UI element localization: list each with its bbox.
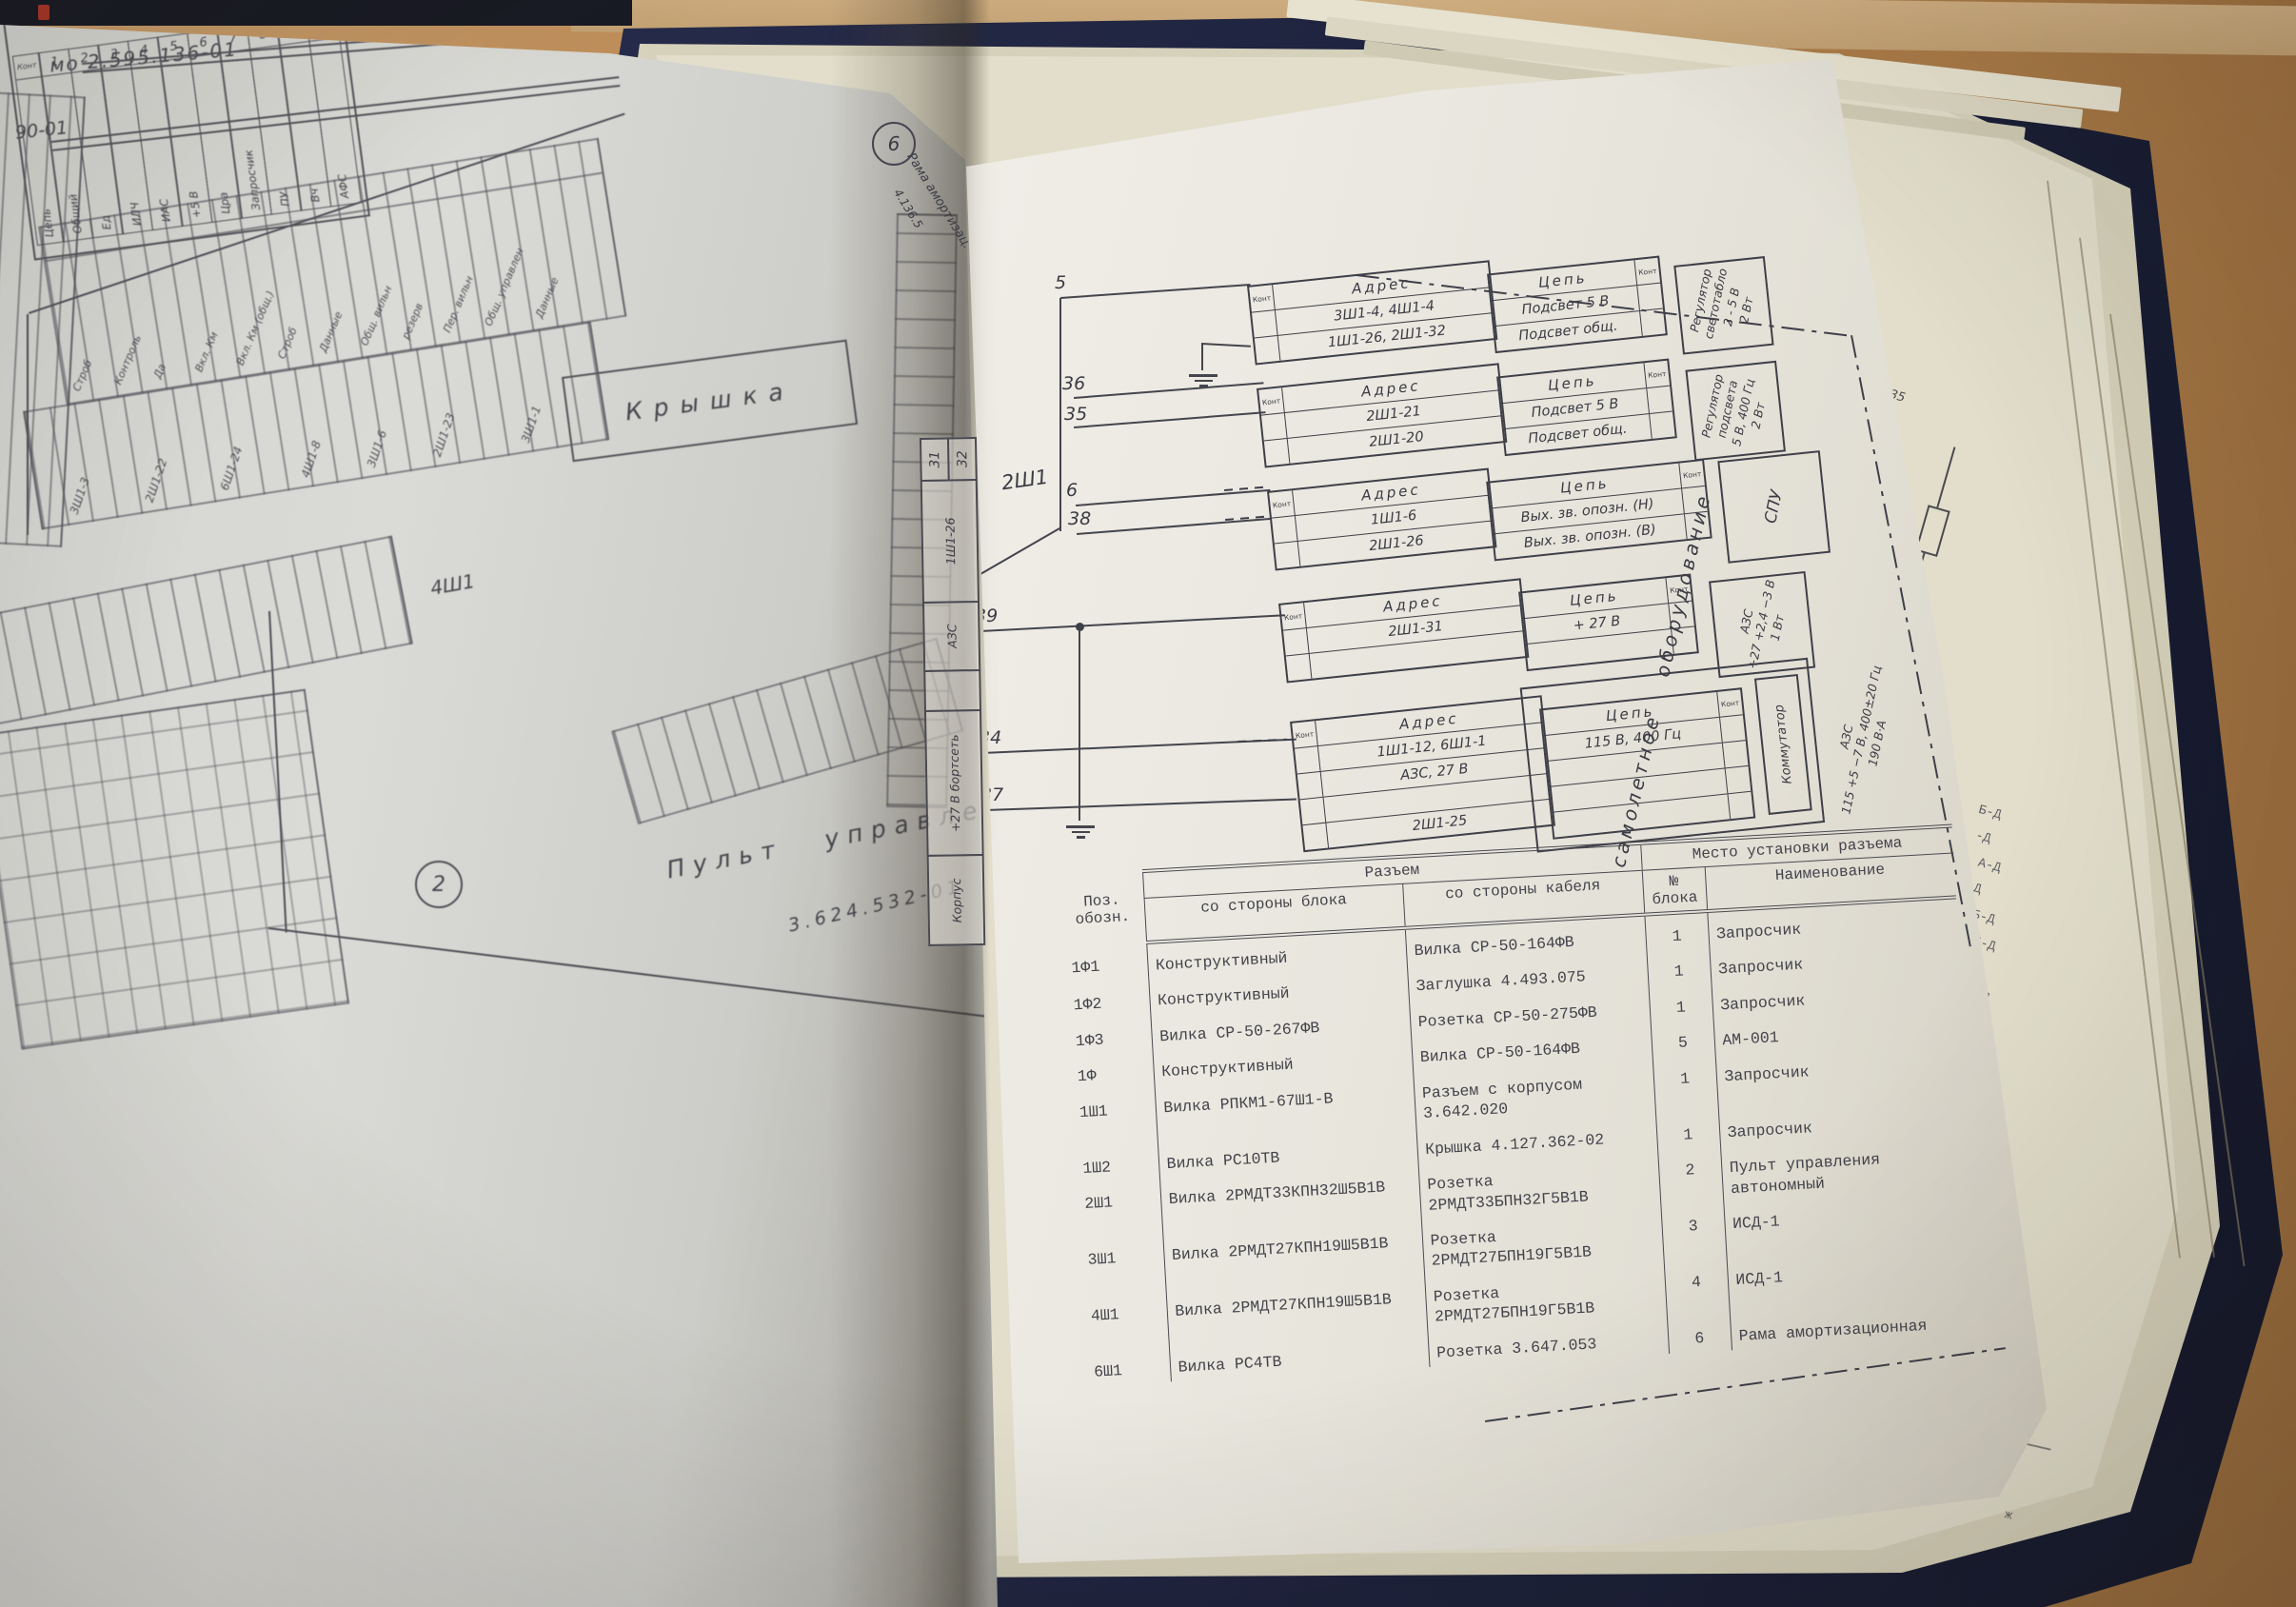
gutter-cell: 1Ш1-26 [920,479,980,604]
pin-row: Конт Цепь 1Общий 2Ед 3ИЛЧ 4ИАС 5+5 В 6Цр… [13,13,362,246]
wire-bus [979,527,1061,576]
pin-grid-block [0,689,349,1050]
pin-32: 32 [947,437,978,482]
wire-dashed [1237,739,1287,743]
address-label: 6Ш1-24 [218,445,246,492]
wire [1074,382,1264,399]
wire-bus [1059,298,1061,531]
equipment-box: СПУ [1717,450,1831,564]
equipment-box: Регулятор подсвета 5 В, 400 Гц 2 Вт [1685,361,1786,462]
shadow-strip [0,0,632,26]
wire [1060,284,1251,299]
connector-table: Поз. обозн. Разъем Место установки разъе… [1059,824,1981,1387]
signal-label: Данные [533,275,562,320]
wire [984,799,1296,811]
wire-number: 35 [1064,404,1087,425]
wire [980,614,1285,632]
equipment-azs-label: АЗС 115 +5 −7 В, 400±20 Гц 190 В·А [1824,662,1901,820]
signal-label: Общ. вильн [358,284,394,347]
address-label: 3Ш1-3 [68,476,92,516]
address-label: 4Ш1-8 [299,439,324,479]
gutter-cell: Корпус [927,854,986,946]
callout-2: 2 [415,861,463,908]
wire [1077,518,1272,535]
kontrol-connector-box: Контроль 1Ш2 Конт Цепь 1Общий 2Ед 3ИЛЧ 4… [0,0,370,261]
gutter-connector-2sh1: 31 32 1Ш1-26 АЗС +27 В бортсеть Корпус [921,439,985,946]
wire-number: 5 [1055,272,1066,293]
signal-label: Вкл. Км [192,330,220,374]
address-label: 2Ш1-23 [430,411,458,459]
wire [1201,343,1251,347]
col-header-block-no: № блока [1642,867,1707,915]
address-label: 3Ш1-1 [519,404,544,444]
box-label: Крышка [623,376,796,426]
pin-31: 31 [920,437,950,482]
kont-header: Конт [12,53,41,80]
signal-label: Данные [317,309,346,354]
address-label: 3Ш1-6 [365,428,389,468]
gutter-cell: АЗС [922,601,980,672]
wire [1074,411,1266,428]
wire-number: 38 [1068,508,1091,529]
photo-open-schematic-book: R35 V23 4 3 R36 Б-Д -Д А-Д -Д Б-Д Б-Д -Д… [0,0,2296,1607]
signal-label: резерв [400,301,426,341]
pin-grid-strip [0,536,413,725]
wire-number: 36 [1062,373,1085,394]
col-header-pos: Поз. обозн. [1059,871,1146,947]
connector-label-4sh1: 4Ш1 [428,569,476,600]
signal-label: Строб [70,358,94,393]
signal-label: Строб [275,326,299,361]
schematic-line [27,314,29,535]
ground-symbol [1065,823,1096,839]
ground-symbol [1188,371,1218,387]
equipment-box: Регулятор светотабло 2 - 5 В 2 Вт [1673,256,1773,355]
gutter-cell: +27 В бортсеть [924,709,984,857]
signal-label: Да [151,362,168,380]
signal-label: Вкл. Км (общ.) [234,289,277,367]
signal-label: Пер. вильн [441,274,476,334]
signal-label: Общ. управлен [483,247,526,328]
wire-number: 6 [1066,480,1078,501]
equipment-outline [1520,658,1826,853]
address-label: 2Ш1-22 [143,457,170,505]
gutter-cell [923,669,981,712]
wire [1079,628,1080,821]
wire [1076,489,1271,506]
kryshka-box: Крышка [562,340,858,463]
red-mark [38,5,49,20]
signal-label: Контроль [111,333,144,387]
wire [1201,344,1203,370]
